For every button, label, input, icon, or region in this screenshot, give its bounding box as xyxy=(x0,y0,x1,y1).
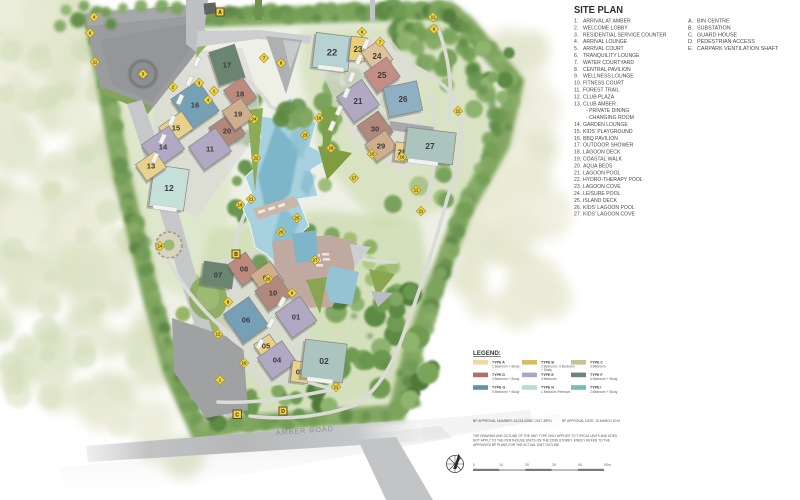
svg-text:20: 20 xyxy=(525,463,529,467)
svg-text:08: 08 xyxy=(240,265,248,274)
svg-text:20: 20 xyxy=(223,127,231,136)
svg-text:CARPARK VENTILATION SHAFT: CARPARK VENTILATION SHAFT xyxy=(697,46,779,52)
svg-text:11: 11 xyxy=(414,188,419,193)
svg-text:01: 01 xyxy=(292,313,301,322)
svg-text:THE DRAWING AND OUTLINE OF THE: THE DRAWING AND OUTLINE OF THE UNIT TYPE… xyxy=(473,434,617,438)
svg-text:27: 27 xyxy=(313,258,318,263)
svg-text:4 Bedroom: 4 Bedroom xyxy=(541,377,557,381)
svg-text:17.: 17. xyxy=(574,143,581,149)
svg-text:NOT APPLY TO THE PENTHOUSE UNI: NOT APPLY TO THE PENTHOUSE UNITS ON THE … xyxy=(473,439,610,443)
svg-text:25: 25 xyxy=(378,71,387,80)
svg-text:BP APPROVAL DATE: 15 MARCH 201: BP APPROVAL DATE: 15 MARCH 2019 xyxy=(562,419,620,423)
svg-text:ARRIVAL COURT: ARRIVAL COURT xyxy=(583,46,624,52)
svg-text:4.: 4. xyxy=(574,39,578,45)
svg-text:5.: 5. xyxy=(574,46,578,52)
svg-text:ARRIVAL LOUNGE: ARRIVAL LOUNGE xyxy=(583,39,628,45)
svg-text:26: 26 xyxy=(399,95,408,104)
svg-text:LEGEND:: LEGEND: xyxy=(473,350,501,357)
svg-text:OUTDOOR SHOWER: OUTDOOR SHOWER xyxy=(583,143,634,149)
svg-text:30: 30 xyxy=(552,463,556,467)
svg-text:27: 27 xyxy=(425,141,435,151)
svg-text:8.: 8. xyxy=(574,67,578,73)
svg-text:FOREST TRAIL: FOREST TRAIL xyxy=(583,88,619,94)
svg-text:D: D xyxy=(281,409,285,415)
svg-text:0: 0 xyxy=(473,463,475,467)
svg-text:6.: 6. xyxy=(574,53,578,59)
svg-text:B: B xyxy=(234,252,238,258)
svg-text:TRANQUILITY LOUNGE: TRANQUILITY LOUNGE xyxy=(583,53,640,59)
svg-text:WATER COURTYARD: WATER COURTYARD xyxy=(583,60,634,66)
svg-text:C: C xyxy=(235,413,239,419)
svg-text:11: 11 xyxy=(334,385,339,390)
svg-text:23.: 23. xyxy=(574,184,581,190)
svg-text:25.: 25. xyxy=(574,198,581,204)
svg-text:WELCOME LOBBY: WELCOME LOBBY xyxy=(583,25,628,31)
svg-text:26.: 26. xyxy=(574,205,581,211)
svg-text:3 Bedroom: 3 Bedroom xyxy=(590,365,606,369)
svg-text:14: 14 xyxy=(158,244,163,249)
svg-text:AQUA BEDS: AQUA BEDS xyxy=(583,163,613,169)
svg-text:16.: 16. xyxy=(574,136,581,142)
svg-text:22: 22 xyxy=(254,156,259,161)
svg-text:19.: 19. xyxy=(574,157,581,163)
svg-text:2 Bedroom + Study: 2 Bedroom + Study xyxy=(590,390,618,394)
svg-text:40: 40 xyxy=(578,463,582,467)
svg-text:07: 07 xyxy=(214,271,222,280)
svg-text:24: 24 xyxy=(252,117,257,122)
svg-text:5 Bedroom + Study: 5 Bedroom + Study xyxy=(492,390,520,394)
svg-text:D.: D. xyxy=(688,39,693,45)
svg-text:FITNESS COURT: FITNESS COURT xyxy=(583,81,624,87)
svg-text:3.: 3. xyxy=(574,32,578,38)
svg-text:1 Bedroom Premium: 1 Bedroom Premium xyxy=(541,390,571,394)
svg-text:10.: 10. xyxy=(574,81,581,87)
svg-text:A: A xyxy=(218,10,222,16)
svg-text:21: 21 xyxy=(354,97,363,106)
svg-text:10: 10 xyxy=(242,361,247,366)
svg-text:B.: B. xyxy=(688,25,693,31)
svg-text:04: 04 xyxy=(273,356,282,365)
svg-text:12.: 12. xyxy=(574,94,581,100)
svg-text:1.: 1. xyxy=(574,19,578,25)
svg-text:16: 16 xyxy=(400,155,405,160)
svg-text:50m: 50m xyxy=(604,463,611,467)
svg-text:KIDS’ LAGOON COVE: KIDS’ LAGOON COVE xyxy=(583,212,635,218)
svg-text:3 Bedroom + Study: 3 Bedroom + Study xyxy=(492,377,520,381)
svg-text:19: 19 xyxy=(317,116,322,121)
svg-text:CENTRAL PAVILION: CENTRAL PAVILION xyxy=(583,67,631,73)
svg-text:18.: 18. xyxy=(574,150,581,156)
svg-text:1 Bedroom + Study: 1 Bedroom + Study xyxy=(492,365,520,369)
svg-text:21.: 21. xyxy=(574,170,581,176)
svg-text:BP APPROVAL NUMBER: A1234-0056: BP APPROVAL NUMBER: A1234-00567-2017-BP0… xyxy=(473,419,552,423)
svg-text:11: 11 xyxy=(93,60,98,65)
svg-text:LAGOON POOL: LAGOON POOL xyxy=(583,170,621,176)
svg-text:RESIDENTIAL SERVICE COUNTER: RESIDENTIAL SERVICE COUNTER xyxy=(583,32,667,38)
svg-text:23: 23 xyxy=(303,133,308,138)
svg-text:19: 19 xyxy=(234,110,242,119)
svg-text:ARRIVAL AT AMBER: ARRIVAL AT AMBER xyxy=(583,19,631,25)
svg-text:KIDS’ LAGOON POOL: KIDS’ LAGOON POOL xyxy=(583,205,635,211)
svg-text:C.: C. xyxy=(688,32,693,38)
svg-text:06: 06 xyxy=(242,316,250,325)
svg-text:29: 29 xyxy=(377,142,385,151)
svg-text:BIN CENTRE: BIN CENTRE xyxy=(697,19,730,25)
svg-text:13.: 13. xyxy=(574,101,581,107)
svg-text:LAGOON COVE: LAGOON COVE xyxy=(583,184,621,190)
svg-text:9.: 9. xyxy=(574,74,578,80)
svg-text:SITE PLAN: SITE PLAN xyxy=(574,5,623,16)
svg-text:11: 11 xyxy=(206,145,215,154)
svg-text:24: 24 xyxy=(373,52,382,61)
svg-text:26: 26 xyxy=(266,277,271,282)
svg-text:CLUB AMBER :: CLUB AMBER : xyxy=(583,101,619,107)
svg-text:11.: 11. xyxy=(574,88,581,94)
svg-text:15.: 15. xyxy=(574,129,581,135)
svg-text:A.: A. xyxy=(688,19,693,25)
svg-text:16: 16 xyxy=(191,101,199,110)
svg-text:27.: 27. xyxy=(574,212,581,218)
svg-text:- CHANGING ROOM: - CHANGING ROOM xyxy=(586,115,634,121)
svg-text:LAGOON DECK: LAGOON DECK xyxy=(583,150,621,156)
svg-text:30: 30 xyxy=(371,125,379,134)
svg-text:COASTAL WALK: COASTAL WALK xyxy=(583,157,622,163)
svg-text:21: 21 xyxy=(249,197,254,202)
svg-text:25: 25 xyxy=(295,216,300,221)
svg-text:4 Bedroom + Study: 4 Bedroom + Study xyxy=(590,377,618,381)
svg-text:11: 11 xyxy=(419,209,424,214)
svg-text:11: 11 xyxy=(431,15,436,20)
svg-text:10: 10 xyxy=(269,289,277,298)
svg-text:+ Study: + Study xyxy=(541,368,552,372)
svg-text:14.: 14. xyxy=(574,122,581,128)
svg-text:17: 17 xyxy=(352,176,357,181)
svg-text:20: 20 xyxy=(279,230,284,235)
svg-text:18: 18 xyxy=(236,90,244,99)
svg-text:KIDS’ PLAYGROUND: KIDS’ PLAYGROUND xyxy=(583,129,633,135)
svg-text:22: 22 xyxy=(327,47,338,58)
svg-text:15: 15 xyxy=(370,152,375,157)
svg-text:PEDESTRIAN ACCESS: PEDESTRIAN ACCESS xyxy=(697,39,755,45)
svg-text:- PRIVATE DINING: - PRIVATE DINING xyxy=(586,108,629,114)
svg-text:12: 12 xyxy=(164,183,174,193)
svg-text:22.: 22. xyxy=(574,177,581,183)
svg-text:CLUB PLAZA: CLUB PLAZA xyxy=(583,94,615,100)
svg-text:10: 10 xyxy=(499,463,503,467)
svg-text:HYDRO-THERAPY POOL: HYDRO-THERAPY POOL xyxy=(583,177,643,183)
svg-text:WELLNESS LOUNGE: WELLNESS LOUNGE xyxy=(583,74,634,80)
svg-text:LEISURE POOL: LEISURE POOL xyxy=(583,191,621,197)
svg-text:14: 14 xyxy=(159,143,168,152)
svg-text:24.: 24. xyxy=(574,191,581,197)
svg-text:12: 12 xyxy=(216,332,221,337)
svg-text:GARDEN LOUNGE: GARDEN LOUNGE xyxy=(583,122,628,128)
svg-text:2.: 2. xyxy=(574,25,578,31)
svg-text:GUARD HOUSE: GUARD HOUSE xyxy=(697,32,738,38)
svg-text:APPROVED BP PLANS FOR THE ACTU: APPROVED BP PLANS FOR THE ACTUAL UNIT OU… xyxy=(473,443,560,447)
svg-text:02: 02 xyxy=(319,356,329,366)
svg-text:17: 17 xyxy=(223,61,231,70)
svg-text:7.: 7. xyxy=(574,60,578,66)
svg-text:15: 15 xyxy=(172,124,181,133)
svg-text:E.: E. xyxy=(688,46,693,52)
svg-text:BBQ PAVILION: BBQ PAVILION xyxy=(583,136,618,142)
svg-text:ISLAND DECK: ISLAND DECK xyxy=(583,198,618,204)
svg-text:20.: 20. xyxy=(574,163,581,169)
svg-text:SUBSTATION: SUBSTATION xyxy=(697,25,731,31)
svg-text:18: 18 xyxy=(329,146,334,151)
svg-text:19: 19 xyxy=(238,203,243,208)
svg-text:11: 11 xyxy=(456,109,461,114)
